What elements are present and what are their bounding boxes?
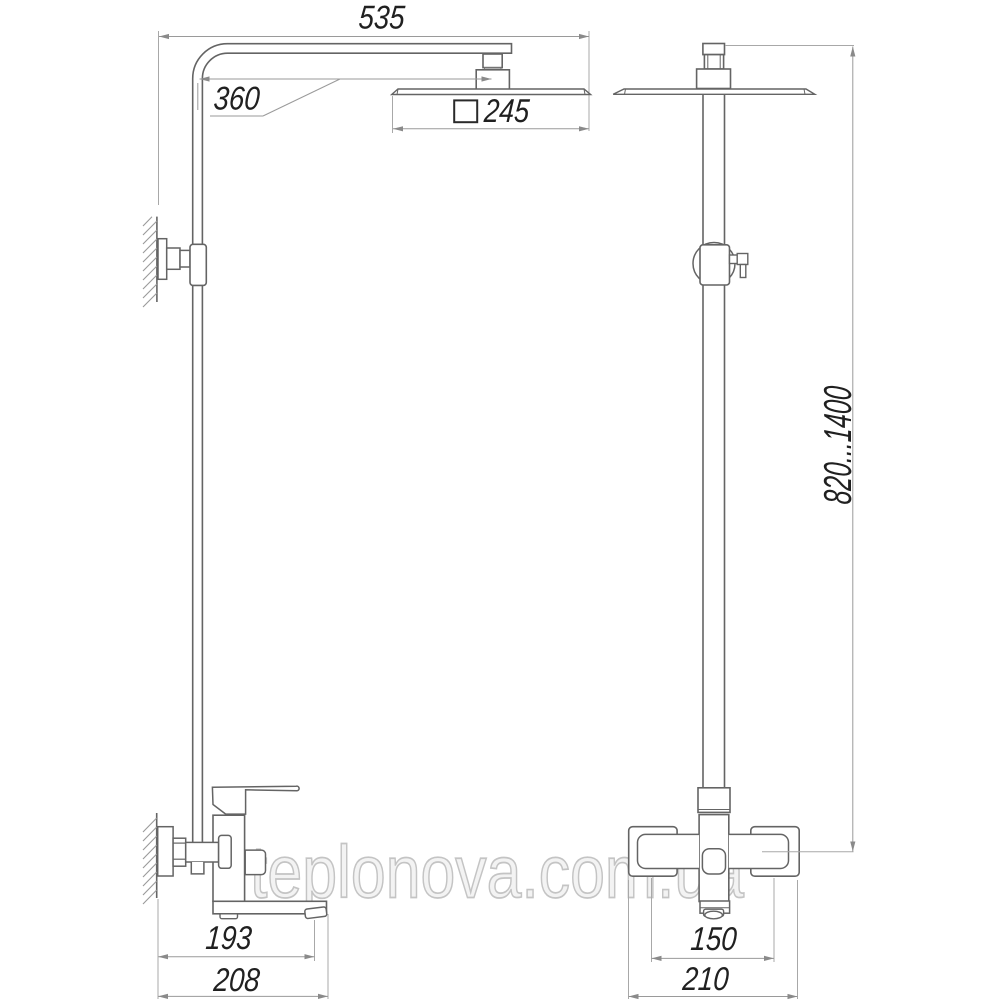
svg-text:820...1400: 820...1400 — [817, 384, 860, 505]
svg-text:193: 193 — [204, 920, 253, 957]
svg-text:210: 210 — [681, 961, 731, 998]
svg-text:535: 535 — [357, 0, 406, 36]
svg-text:150: 150 — [689, 921, 738, 958]
svg-text:208: 208 — [212, 962, 262, 999]
svg-text:245: 245 — [482, 93, 531, 130]
svg-text:360: 360 — [212, 81, 261, 118]
